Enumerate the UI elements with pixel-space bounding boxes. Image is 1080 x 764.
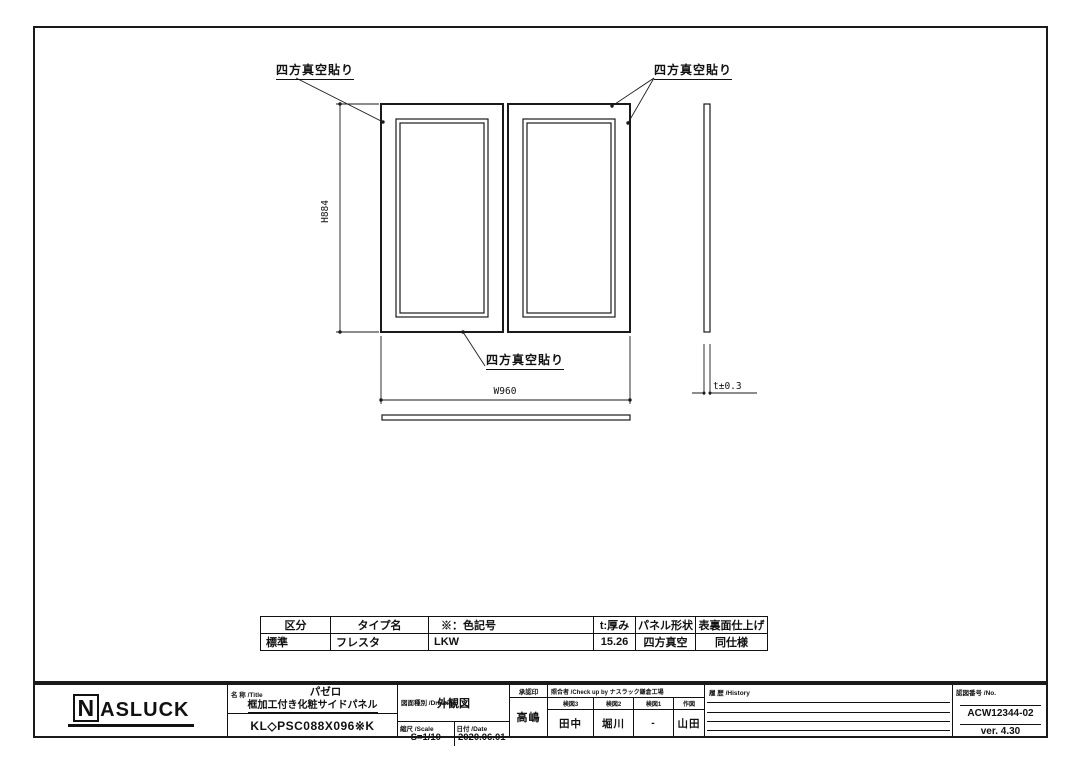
dim-thickness-label: t±0.3 bbox=[713, 381, 742, 392]
checkers-cell: 照合者 /Check up by ナスラック鎌倉工場 検図3 検図2 検図1 作… bbox=[547, 685, 704, 736]
title-block: NASLUCK 名 称 /Title パゼロ 框加工付き化粧サイドパネル KL◇… bbox=[33, 683, 1048, 738]
left-panel-molding-outer bbox=[396, 119, 488, 317]
spec-header-colorcode: ※：色記号 bbox=[429, 617, 594, 634]
title-cell: 名 称 /Title パゼロ 框加工付き化粧サイドパネル KL◇PSC088X0… bbox=[227, 685, 397, 736]
checker-header-3: 検図3 bbox=[548, 698, 593, 710]
history-rule-line bbox=[707, 730, 950, 731]
drawing-type-field-label: 図面種別 /Drawing bbox=[401, 697, 456, 707]
spec-value-type: フレスタ bbox=[331, 634, 429, 651]
spec-header-category: 区分 bbox=[261, 617, 331, 634]
dim-height-lines bbox=[336, 104, 379, 332]
checker-name-draft: 山田 bbox=[673, 710, 704, 736]
checker-header-1: 検図1 bbox=[633, 698, 673, 710]
spec-header-panelshape: パネル形状 bbox=[636, 617, 696, 634]
right-panel-molding-outer bbox=[523, 119, 615, 317]
scale-cell: 縮尺 /Scale S=1/10 bbox=[398, 722, 454, 746]
logo-letter-n: N bbox=[73, 694, 100, 722]
side-view-outline bbox=[704, 104, 710, 332]
callout-vacuum-top-left: 四方真空貼り bbox=[276, 61, 354, 80]
checker-header-draft: 作図 bbox=[673, 698, 704, 710]
nasluck-logo: NASLUCK bbox=[68, 694, 195, 727]
title-field-label: 名 称 /Title bbox=[231, 689, 263, 699]
product-name: 框加工付き化粧サイドパネル bbox=[248, 700, 378, 713]
leader-top-right bbox=[612, 78, 654, 123]
right-panel-outline bbox=[508, 104, 630, 332]
right-panel-molding-inner bbox=[527, 123, 611, 313]
scale-value: S=1/10 bbox=[398, 732, 454, 743]
left-panel-outline bbox=[381, 104, 503, 332]
drawing-sheet: 四方真空貼り 四方真空貼り 四方真空貼り H884 W960 t±0.3 区分 … bbox=[0, 0, 1080, 764]
history-rule-line bbox=[707, 702, 950, 703]
leader-top-left bbox=[296, 78, 383, 122]
spec-value-colorcode: LKW bbox=[429, 634, 594, 651]
spec-header-row: 区分 タイプ名 ※：色記号 t:厚み パネル形状 表裏面仕上げ bbox=[261, 617, 768, 634]
number-divider bbox=[960, 724, 1041, 725]
history-rule-line bbox=[707, 721, 950, 722]
spec-header-thickness: t:厚み bbox=[594, 617, 636, 634]
approval-cell: 承認印 高嶋 bbox=[509, 685, 547, 736]
history-rule-line bbox=[707, 712, 950, 713]
approval-field-label: 承認印 bbox=[519, 686, 539, 696]
number-divider bbox=[960, 705, 1041, 706]
checker-name-2: 堀川 bbox=[593, 710, 633, 736]
history-field-label: 履 歴 /History bbox=[709, 687, 750, 697]
checker-name-1: - bbox=[633, 710, 673, 736]
spec-value-panelshape: 四方真空 bbox=[636, 634, 696, 651]
callout-vacuum-bottom: 四方真空貼り bbox=[486, 351, 564, 370]
spec-value-category: 標準 bbox=[261, 634, 331, 651]
approver-name: 高嶋 bbox=[510, 698, 547, 736]
spec-value-thickness: 15.26 bbox=[594, 634, 636, 651]
spec-value-finish: 同仕様 bbox=[696, 634, 768, 651]
checker-name-3: 田中 bbox=[548, 710, 593, 736]
checker-header-2: 検図2 bbox=[593, 698, 633, 710]
product-title-area: 名 称 /Title パゼロ 框加工付き化粧サイドパネル bbox=[228, 687, 397, 714]
dim-height-label: H884 bbox=[320, 200, 331, 223]
callout-vacuum-top-right: 四方真空貼り bbox=[654, 61, 732, 80]
logo-wordmark: ASLUCK bbox=[100, 699, 189, 721]
checkers-field-label: 照合者 /Check up by ナスラック鎌倉工場 bbox=[551, 687, 664, 696]
date-value: 2020.06.01 bbox=[455, 732, 510, 743]
drawing-type-cell: 図面種別 /Drawing 外観図 縮尺 /Scale S=1/10 日付 /D… bbox=[397, 685, 509, 736]
drawing-number: ACW12344-02 bbox=[953, 708, 1048, 719]
product-code: KL◇PSC088X096※K bbox=[228, 714, 397, 738]
left-panel-molding-inner bbox=[400, 123, 484, 313]
leader-bottom bbox=[463, 332, 485, 366]
history-cell: 履 歴 /History bbox=[704, 685, 952, 736]
spec-value-row: 標準 フレスタ LKW 15.26 四方真空 同仕様 bbox=[261, 634, 768, 651]
spec-table: 区分 タイプ名 ※：色記号 t:厚み パネル形状 表裏面仕上げ 標準 フレスタ … bbox=[260, 616, 768, 651]
drawing-version: ver. 4.30 bbox=[953, 726, 1048, 737]
logo-cell: NASLUCK bbox=[35, 685, 227, 736]
date-cell: 日付 /Date 2020.06.01 bbox=[454, 722, 510, 746]
spec-header-type: タイプ名 bbox=[331, 617, 429, 634]
spec-header-finish: 表裏面仕上げ bbox=[696, 617, 768, 634]
drawing-number-cell: 認図番号 /No. ACW12344-02 ver. 4.30 bbox=[952, 685, 1048, 736]
bottom-view-outline bbox=[382, 415, 630, 420]
number-field-label: 認図番号 /No. bbox=[956, 687, 996, 697]
dim-width-label: W960 bbox=[470, 386, 540, 397]
